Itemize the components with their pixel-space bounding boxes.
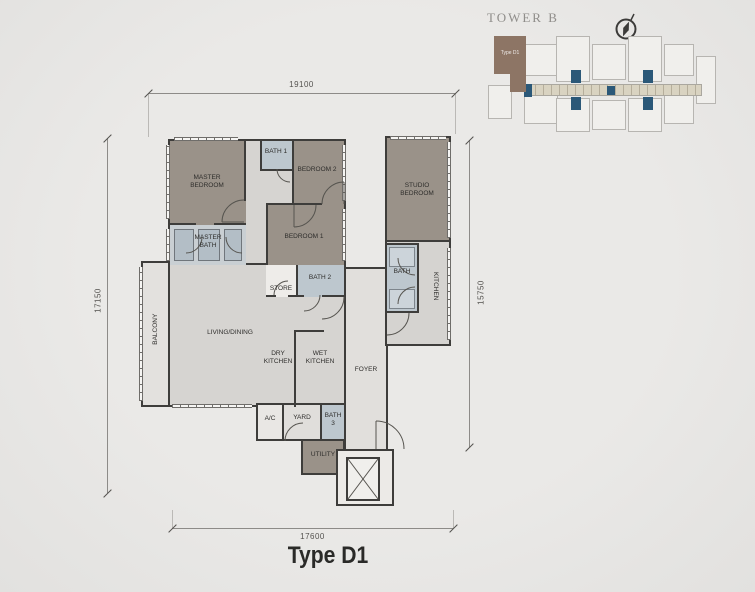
dimension-label-top: 19100 — [148, 80, 455, 89]
extension-line — [453, 510, 454, 528]
room-label-wet-kitchen: WET KITCHEN — [305, 350, 335, 367]
extension-line — [172, 510, 173, 528]
room-label-bath-2: BATH 2 — [300, 274, 340, 282]
dimension-label-bottom: 17600 — [172, 532, 453, 541]
room-label-store: STORE — [266, 285, 296, 293]
dimension-line-bottom — [172, 528, 453, 529]
dimension-line-right — [469, 140, 470, 447]
room-label-ac: A/C — [259, 415, 281, 423]
room-label-utility: UTILITY — [302, 451, 344, 459]
room-label-bath-1: BATH 1 — [258, 148, 294, 156]
floor-plan: MASTER BEDROOM MASTER BATH BATH 1 BEDROO… — [0, 0, 755, 592]
room-label-dry-kitchen: DRY KITCHEN — [263, 350, 293, 367]
room-label-studio-bath: BATH — [387, 268, 417, 276]
room-label-bedroom-2: BEDROOM 2 — [292, 166, 342, 174]
extension-line — [148, 93, 149, 137]
room-label-bath-3: BATH 3 — [324, 412, 342, 429]
room-label-studio-bedroom: STUDIO BEDROOM — [397, 182, 437, 199]
room-label-bedroom-1: BEDROOM 1 — [268, 233, 340, 241]
room-label-foyer: FOYER — [346, 366, 386, 374]
dimension-line-top — [148, 93, 455, 94]
extension-line — [455, 93, 456, 134]
room-label-master-bath: MASTER BATH — [193, 234, 223, 251]
dimension-line-left — [107, 138, 108, 493]
room-label-living-dining: LIVING/DINING — [180, 329, 280, 337]
room-label-master-bedroom: MASTER BEDROOM — [187, 174, 227, 191]
room-label-yard: YARD — [284, 414, 320, 422]
room-label-kitchen: KITCHEN — [431, 259, 439, 313]
dimension-label-left: 17150 — [94, 279, 103, 323]
dimension-label-right: 15750 — [477, 271, 486, 315]
plan-title: Type D1 — [240, 542, 416, 570]
room-label-balcony: BALCONY — [152, 302, 160, 356]
